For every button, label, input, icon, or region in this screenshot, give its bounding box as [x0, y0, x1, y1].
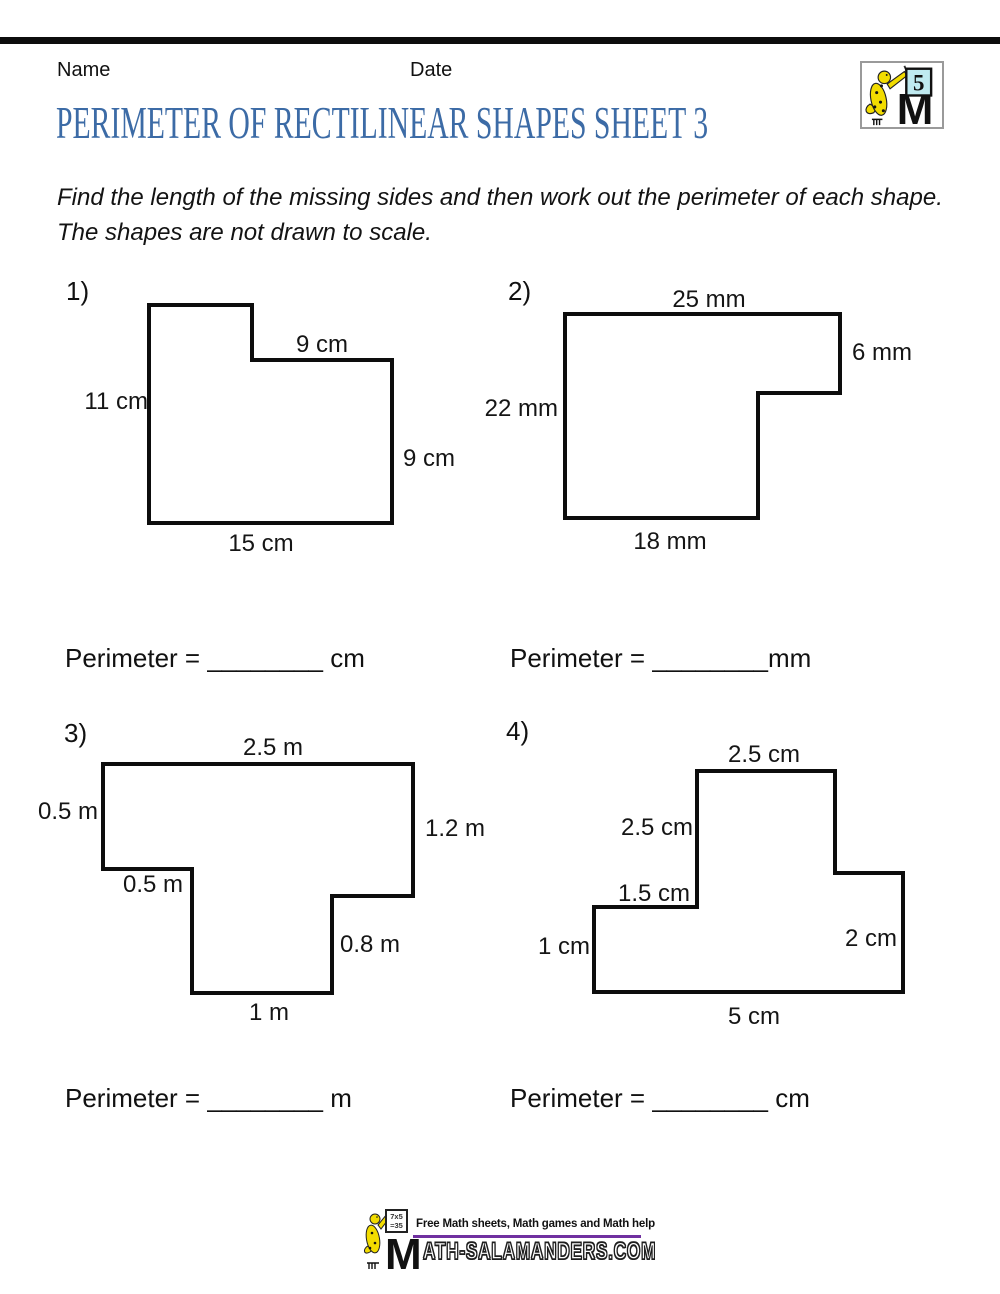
answer-line-3: Perimeter = ________ m	[65, 1083, 352, 1114]
instructions-line-2: The shapes are not drawn to scale.	[57, 215, 967, 250]
shape-4-right-label: 2 cm	[845, 925, 897, 952]
shape-3: 2.5 m 0.5 m 1.2 m 0.5 m 0.8 m 1 m	[30, 710, 500, 1040]
date-label: Date	[410, 59, 452, 82]
badge-number: 5	[913, 71, 924, 96]
footer-tagline: Free Math sheets, Math games and Math he…	[416, 1218, 655, 1230]
answer-line-2: Perimeter = ________mm	[510, 643, 811, 674]
salamander-grade-logo-icon: M 5	[862, 63, 942, 127]
name-label: Name	[57, 59, 110, 82]
shape-2-outline	[565, 314, 840, 518]
shape-3-right-label: 1.2 m	[425, 815, 485, 842]
footer-salamander-logo-icon: M 7x5 =35	[363, 1207, 425, 1271]
shape-1: 9 cm 11 cm 9 cm 15 cm	[60, 270, 470, 570]
worksheet-page: Name Date M 5 PERIMETER OF RECTILINEA	[0, 0, 1000, 1294]
shape-1-bottom-label: 15 cm	[228, 530, 293, 557]
footer-board-line-2: =35	[390, 1221, 403, 1230]
shape-4-left-label: 1 cm	[538, 933, 590, 960]
shape-1-left-label: 11 cm	[84, 388, 148, 415]
shape-2-right-label: 6 mm	[852, 339, 912, 366]
shape-2-top-label: 25 mm	[672, 286, 745, 313]
shape-1-top-label: 9 cm	[296, 331, 348, 358]
shape-3-top-label: 2.5 m	[243, 734, 303, 761]
footer-brand: M 7x5 =35 Free Math sheets, Math games a…	[363, 1207, 663, 1273]
shape-3-bottom-label: 1 m	[249, 999, 289, 1026]
shape-4: 2.5 cm 2.5 cm 1.5 cm 1 cm 2 cm 5 cm	[500, 710, 970, 1040]
footer-board-line-1: 7x5	[390, 1212, 403, 1221]
instructions-line-1: Find the length of the missing sides and…	[57, 180, 967, 215]
shape-3-step-label: 0.5 m	[123, 871, 183, 898]
top-divider-rule	[0, 37, 1000, 44]
shape-4-top-label: 2.5 cm	[728, 741, 800, 768]
answer-line-1: Perimeter = ________ cm	[65, 643, 365, 674]
grade-badge-logo: M 5	[860, 61, 944, 129]
shape-3-inner-right-label: 0.8 m	[340, 931, 400, 958]
shape-4-step-left-label: 1.5 cm	[618, 880, 690, 907]
instructions: Find the length of the missing sides and…	[57, 180, 967, 250]
shape-3-left-label: 0.5 m	[38, 798, 98, 825]
footer-site-text: ATH-SALAMANDERS.COM	[423, 1238, 656, 1266]
shape-4-upper-left-label: 2.5 cm	[621, 814, 693, 841]
shape-4-bottom-label: 5 cm	[728, 1003, 780, 1030]
shape-1-right-label: 9 cm	[403, 445, 455, 472]
shape-2: 25 mm 6 mm 22 mm 18 mm	[480, 270, 960, 570]
shape-2-bottom-label: 18 mm	[633, 528, 706, 555]
shape-1-outline	[149, 305, 392, 523]
page-title: PERIMETER OF RECTILINEAR SHAPES SHEET 3	[56, 101, 708, 146]
answer-line-4: Perimeter = ________ cm	[510, 1083, 810, 1114]
shape-2-left-label: 22 mm	[485, 395, 558, 422]
